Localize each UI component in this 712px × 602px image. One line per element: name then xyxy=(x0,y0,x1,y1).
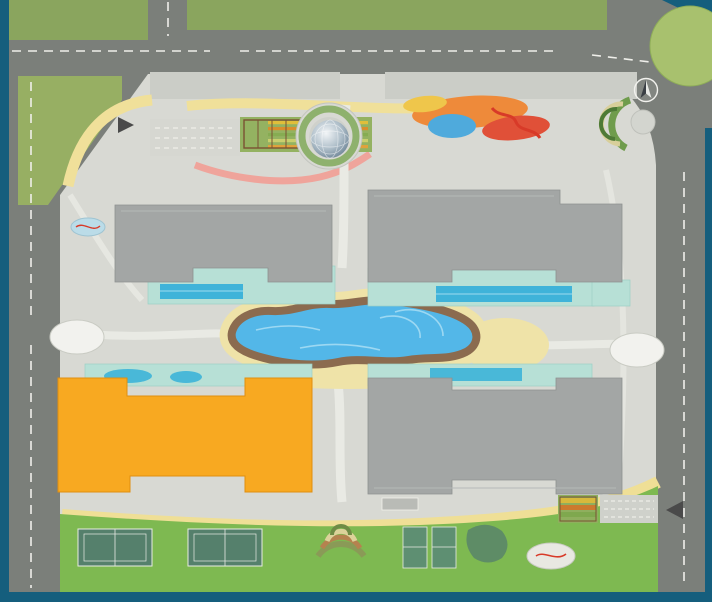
sphere-plaza xyxy=(296,103,362,169)
site-plan xyxy=(0,0,712,602)
lagoon-water xyxy=(232,300,477,364)
building-park-10 xyxy=(368,190,622,282)
small-pavilion xyxy=(382,498,418,510)
lawn-top-left xyxy=(9,0,148,40)
compass xyxy=(635,79,658,102)
site-plan-canvas xyxy=(0,0,712,602)
plaza-22-right xyxy=(610,333,664,367)
building-park-11 xyxy=(368,378,622,494)
pond-28-top xyxy=(71,218,105,236)
garden-beds-23 xyxy=(558,495,598,523)
playground-pond xyxy=(428,114,476,138)
plaza-22-left xyxy=(50,320,104,354)
parking-strips xyxy=(150,72,637,99)
pond-28-bottom xyxy=(527,543,575,569)
sphere-sculpture xyxy=(311,120,349,158)
lawn-top-right xyxy=(187,0,607,30)
parking-29-right xyxy=(600,495,658,523)
